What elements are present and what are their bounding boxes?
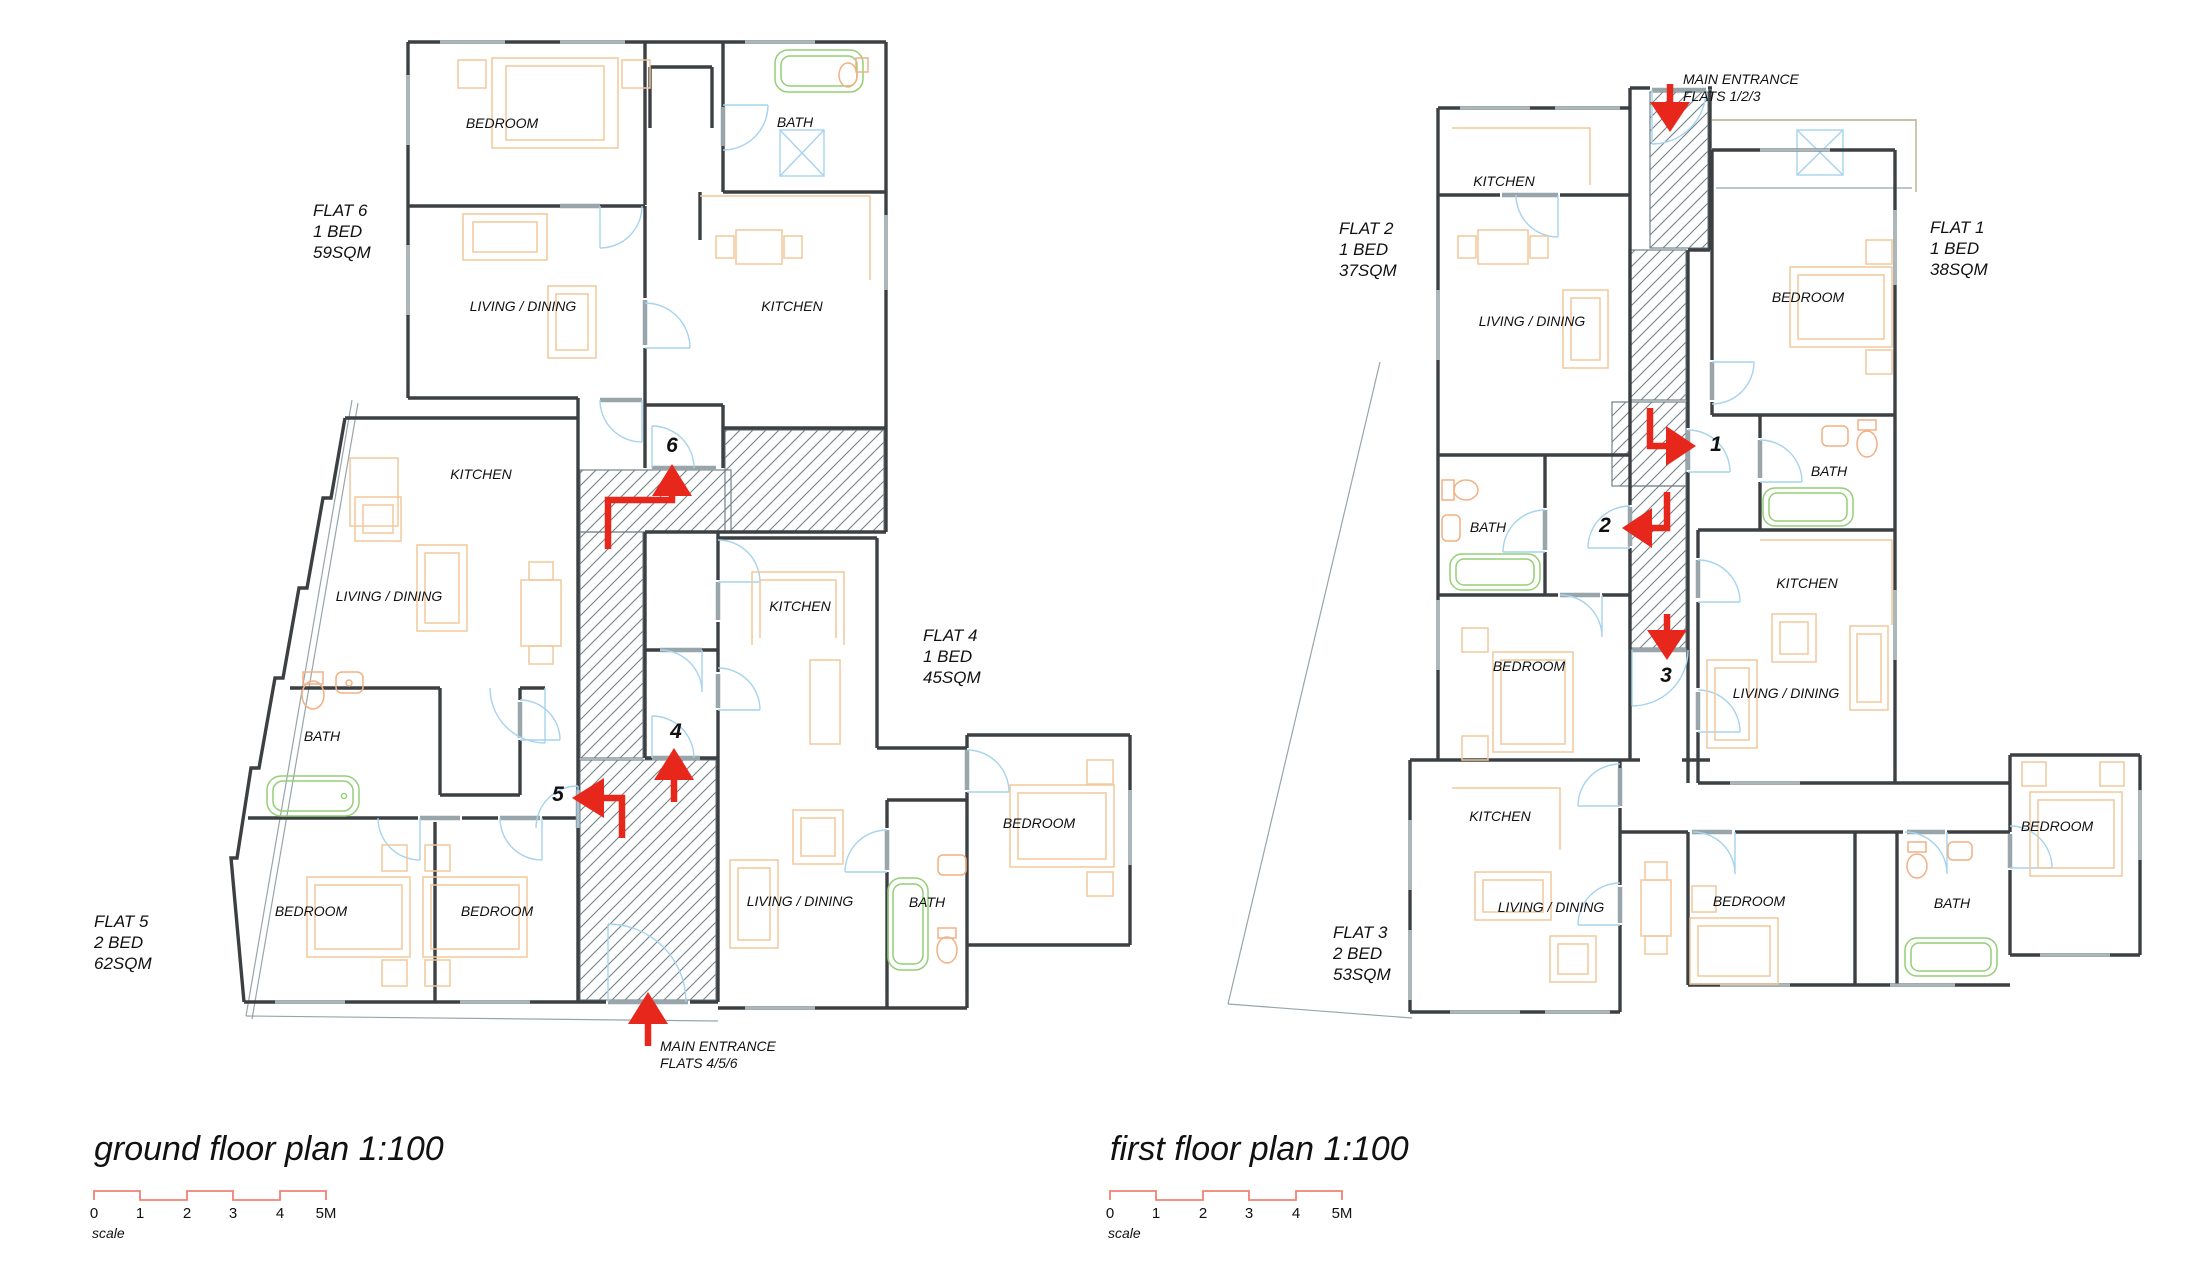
- flat-name: FLAT 2: [1339, 219, 1394, 238]
- room-label: KITCHEN: [1469, 808, 1531, 824]
- room-label: BEDROOM: [1713, 893, 1786, 909]
- unit-number: 5: [552, 783, 564, 806]
- scale-tick: 5M: [1332, 1205, 1353, 1222]
- room-label: BEDROOM: [275, 903, 348, 919]
- main-entrance-label: MAIN ENTRANCE FLATS 1/2/3: [1683, 71, 1800, 104]
- flat-info-flat5: FLAT 5 2 BED 62SQM: [93, 912, 152, 973]
- flat-area: 38SQM: [1930, 260, 1988, 279]
- flat-beds: 2 BED: [1332, 944, 1382, 963]
- room-label: LIVING / DINING: [1498, 899, 1605, 915]
- flat-name: FLAT 6: [313, 201, 368, 220]
- furniture: [1452, 128, 2124, 984]
- flat-area: 45SQM: [923, 668, 981, 687]
- room-label: BATH: [1470, 519, 1507, 535]
- flat-beds: 1 BED: [923, 647, 972, 666]
- scale-bar-first: 0 1 2 3 4 5M scale: [1106, 1191, 1353, 1241]
- room-label: KITCHEN: [1776, 575, 1838, 591]
- room-label: BEDROOM: [1493, 658, 1566, 674]
- entrance-label-line2: FLATS 4/5/6: [660, 1055, 738, 1071]
- scale-bar-ground: 0 1 2 3 4 5M scale: [90, 1191, 337, 1241]
- first-floor-title: first floor plan 1:100: [1110, 1130, 1409, 1168]
- unit-number: 1: [1710, 433, 1722, 456]
- flat-name: FLAT 4: [923, 626, 977, 645]
- flat-beds: 2 BED: [93, 933, 143, 952]
- ground-floor-title: ground floor plan 1:100: [94, 1130, 444, 1168]
- flat-beds: 1 BED: [1930, 239, 1979, 258]
- flat-name: FLAT 3: [1333, 923, 1388, 942]
- room-label: BATH: [777, 114, 814, 130]
- room-label: BATH: [1934, 895, 1971, 911]
- flat-info-flat1: FLAT 1 1 BED 38SQM: [1930, 218, 1988, 279]
- first-floor-plan: KITCHEN LIVING / DINING BATH BEDROOM BED…: [1106, 71, 2140, 1241]
- door-arcs: [1503, 90, 2052, 925]
- room-label: KITCHEN: [769, 598, 831, 614]
- scale-tick: 2: [1199, 1205, 1207, 1222]
- room-label: LIVING / DINING: [1479, 313, 1586, 329]
- room-label: BEDROOM: [1772, 289, 1845, 305]
- room-label: BEDROOM: [1003, 815, 1076, 831]
- room-label: KITCHEN: [761, 298, 823, 314]
- scale-tick: 4: [1292, 1205, 1300, 1222]
- room-label: LIVING / DINING: [470, 298, 577, 314]
- flat-beds: 1 BED: [1339, 240, 1388, 259]
- scale-word: scale: [1108, 1225, 1141, 1241]
- flat-beds: 1 BED: [313, 222, 362, 241]
- flat-name: FLAT 5: [94, 912, 149, 931]
- main-entrance-label: MAIN ENTRANCE FLATS 4/5/6: [660, 1038, 777, 1071]
- room-label: BEDROOM: [466, 115, 539, 131]
- entrance-label-line1: MAIN ENTRANCE: [660, 1038, 777, 1054]
- scale-tick: 3: [1245, 1205, 1253, 1222]
- scale-tick: 1: [136, 1205, 144, 1222]
- room-label: LIVING / DINING: [747, 893, 854, 909]
- scale-tick: 1: [1152, 1205, 1160, 1222]
- entrance-label-line1: MAIN ENTRANCE: [1683, 71, 1800, 87]
- scale-tick: 3: [229, 1205, 237, 1222]
- room-label: BATH: [1811, 463, 1848, 479]
- room-label: KITCHEN: [450, 466, 512, 482]
- unit-number: 2: [1598, 514, 1611, 537]
- flat-info-flat3: FLAT 3 2 BED 53SQM: [1332, 923, 1391, 984]
- flat-info-flat6: FLAT 6 1 BED 59SQM: [313, 201, 371, 262]
- scale-tick: 5M: [316, 1205, 337, 1222]
- unit-number: 4: [669, 720, 682, 743]
- room-label: BATH: [304, 728, 341, 744]
- flat-info-flat2: FLAT 2 1 BED 37SQM: [1339, 219, 1397, 280]
- roof-and-skylight: [1712, 120, 1916, 192]
- scale-tick: 2: [183, 1205, 191, 1222]
- site-boundary-lines: [1228, 362, 1412, 1018]
- unit-number: 6: [666, 434, 678, 457]
- floor-plan-drawing: BEDROOM BATH LIVING / DINING KITCHEN KIT…: [0, 0, 2202, 1279]
- ground-floor-plan: BEDROOM BATH LIVING / DINING KITCHEN KIT…: [90, 42, 1130, 1241]
- flat-area: 53SQM: [1333, 965, 1391, 984]
- room-label: KITCHEN: [1473, 173, 1535, 189]
- room-label: BEDROOM: [2021, 818, 2094, 834]
- room-label: LIVING / DINING: [336, 588, 443, 604]
- flat-area: 37SQM: [1339, 261, 1397, 280]
- communal-hatched-area: [580, 430, 884, 1000]
- flat-area: 59SQM: [313, 243, 371, 262]
- flat-name: FLAT 1: [1930, 218, 1984, 237]
- room-labels: KITCHEN LIVING / DINING BATH BEDROOM BED…: [1469, 173, 2093, 915]
- scale-tick: 0: [1106, 1205, 1114, 1222]
- scale-word: scale: [92, 1225, 125, 1241]
- room-label: LIVING / DINING: [1733, 685, 1840, 701]
- unit-number: 3: [1660, 664, 1672, 687]
- room-label: BATH: [909, 894, 946, 910]
- flat-info-flat4: FLAT 4 1 BED 45SQM: [923, 626, 981, 687]
- entrance-label-line2: FLATS 1/2/3: [1683, 88, 1761, 104]
- flat-area: 62SQM: [94, 954, 152, 973]
- scale-tick: 4: [276, 1205, 284, 1222]
- scale-tick: 0: [90, 1205, 98, 1222]
- communal-hatched-area: [1612, 92, 1708, 648]
- room-label: BEDROOM: [461, 903, 534, 919]
